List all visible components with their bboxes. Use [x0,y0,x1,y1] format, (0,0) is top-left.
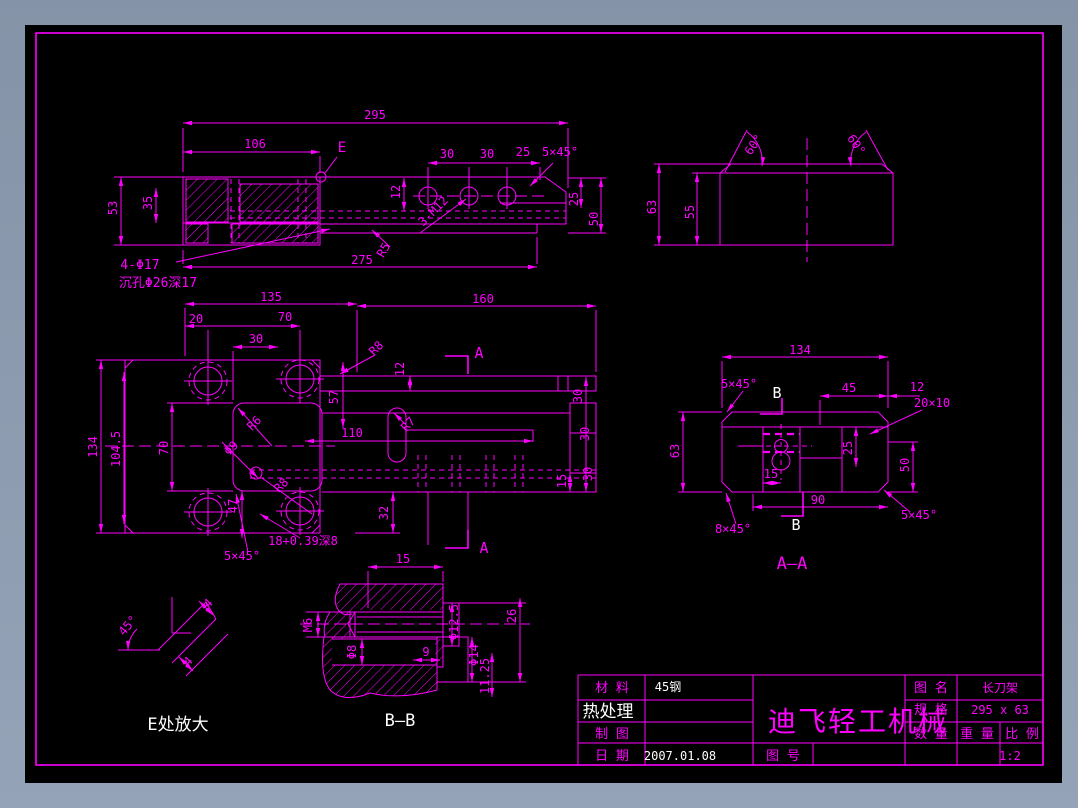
material-value: 45钢 [655,680,681,694]
dim-label: 25 [516,145,530,159]
chamfer-label: 5×45° [542,145,578,159]
section-bb-title: B—B [385,711,416,731]
dim-label: 53 [106,201,120,215]
counterbore-note: 沉孔Φ26深17 [119,276,197,291]
dim-label: 15 [396,552,410,566]
dim-label: 45 [842,381,856,395]
dim-label: 30 [571,389,585,403]
chamfer-label: 5×45° [721,377,757,391]
dia-label: Φ12.5 [447,604,461,640]
dim-label: 47 [226,499,240,513]
dim-label: 106 [244,137,266,151]
section-mark-b: B [772,384,781,402]
section-mark-b: B [791,516,800,534]
dim-label: 12 [389,185,403,199]
dim-label: 26 [505,609,519,623]
drawing-no-label: 图 号 [766,749,800,764]
dim-label: 135 [260,290,282,304]
dim-label: 134 [789,343,811,357]
material-label: 材 料 [595,681,629,696]
scale-value: 1:2 [999,749,1021,763]
hole-note: 4-Φ17 [120,258,159,273]
spec-label: 规 格 [914,702,948,718]
drawing-name-value: 长刀架 [982,681,1018,695]
spec-value: 295 x 63 [971,703,1029,717]
dim-label: 25 [841,441,855,455]
dim-label: 35 [141,196,155,210]
dim-label: 9 [422,645,429,659]
slot-tolerance-note: 18+0.39深8 [268,534,338,548]
dim-label: 50 [898,458,912,472]
dim-label: 30 [581,467,595,481]
date-value: 2007.01.08 [644,749,716,763]
dim-label: 15 [764,467,778,481]
thread-label: M6 [301,618,315,632]
dim-label: 30 [578,427,592,441]
dim-label: 110 [341,426,363,440]
drawing-name-label: 图 名 [914,680,948,696]
quantity-label: 数 量 [914,727,948,742]
pocket-label: 20×10 [914,396,950,410]
chamfer-label: 5×45° [901,508,937,522]
dim-label: 63 [668,444,682,458]
dim-label: 20 [189,312,203,326]
chamfer-label: 8×45° [715,522,751,536]
dim-label: 70 [278,310,292,324]
dim-label: 55 [683,205,697,219]
drawing-sheet [25,25,1062,783]
heat-treatment-label: 热处理 [583,702,634,722]
dim-label: 104.5 [109,431,123,467]
cad-drawing-canvas: 295 106 E 30 30 25 5×45° 12 53 35 3-M12 … [0,0,1078,808]
detail-e-title: E处放大 [147,715,208,735]
dim-label: 30 [440,147,454,161]
drafter-label: 制 图 [595,727,629,742]
dim-label: 63 [645,200,659,214]
section-mark-a: A [474,344,483,362]
dia-label: Φ8 [345,645,359,659]
dim-label: 50 [587,212,601,226]
dim-label: 134 [86,436,100,458]
dim-label: 90 [811,493,825,507]
dim-label: 275 [351,253,373,267]
dim-label: 57 [327,390,341,404]
detail-callout-e: E [338,140,346,156]
dim-label: 15 [555,474,569,488]
dim-label: 30 [480,147,494,161]
dim-label: 11.25 [478,658,492,694]
dim-label: 70 [157,441,171,455]
dim-label: 160 [472,292,494,306]
dim-label: 30 [249,332,263,346]
dim-label: 295 [364,108,386,122]
dim-label: 12 [910,380,924,394]
chamfer-label: 5×45° [224,549,260,563]
section-aa-title: A—A [777,554,808,574]
dim-label: 32 [377,506,391,520]
dim-label: 25 [567,192,581,206]
section-mark-a: A [479,539,488,557]
scale-label: 比 例 [1005,727,1039,742]
weight-label: 重 量 [960,726,994,742]
date-label: 日 期 [595,749,629,764]
dim-label: 12 [393,362,407,376]
